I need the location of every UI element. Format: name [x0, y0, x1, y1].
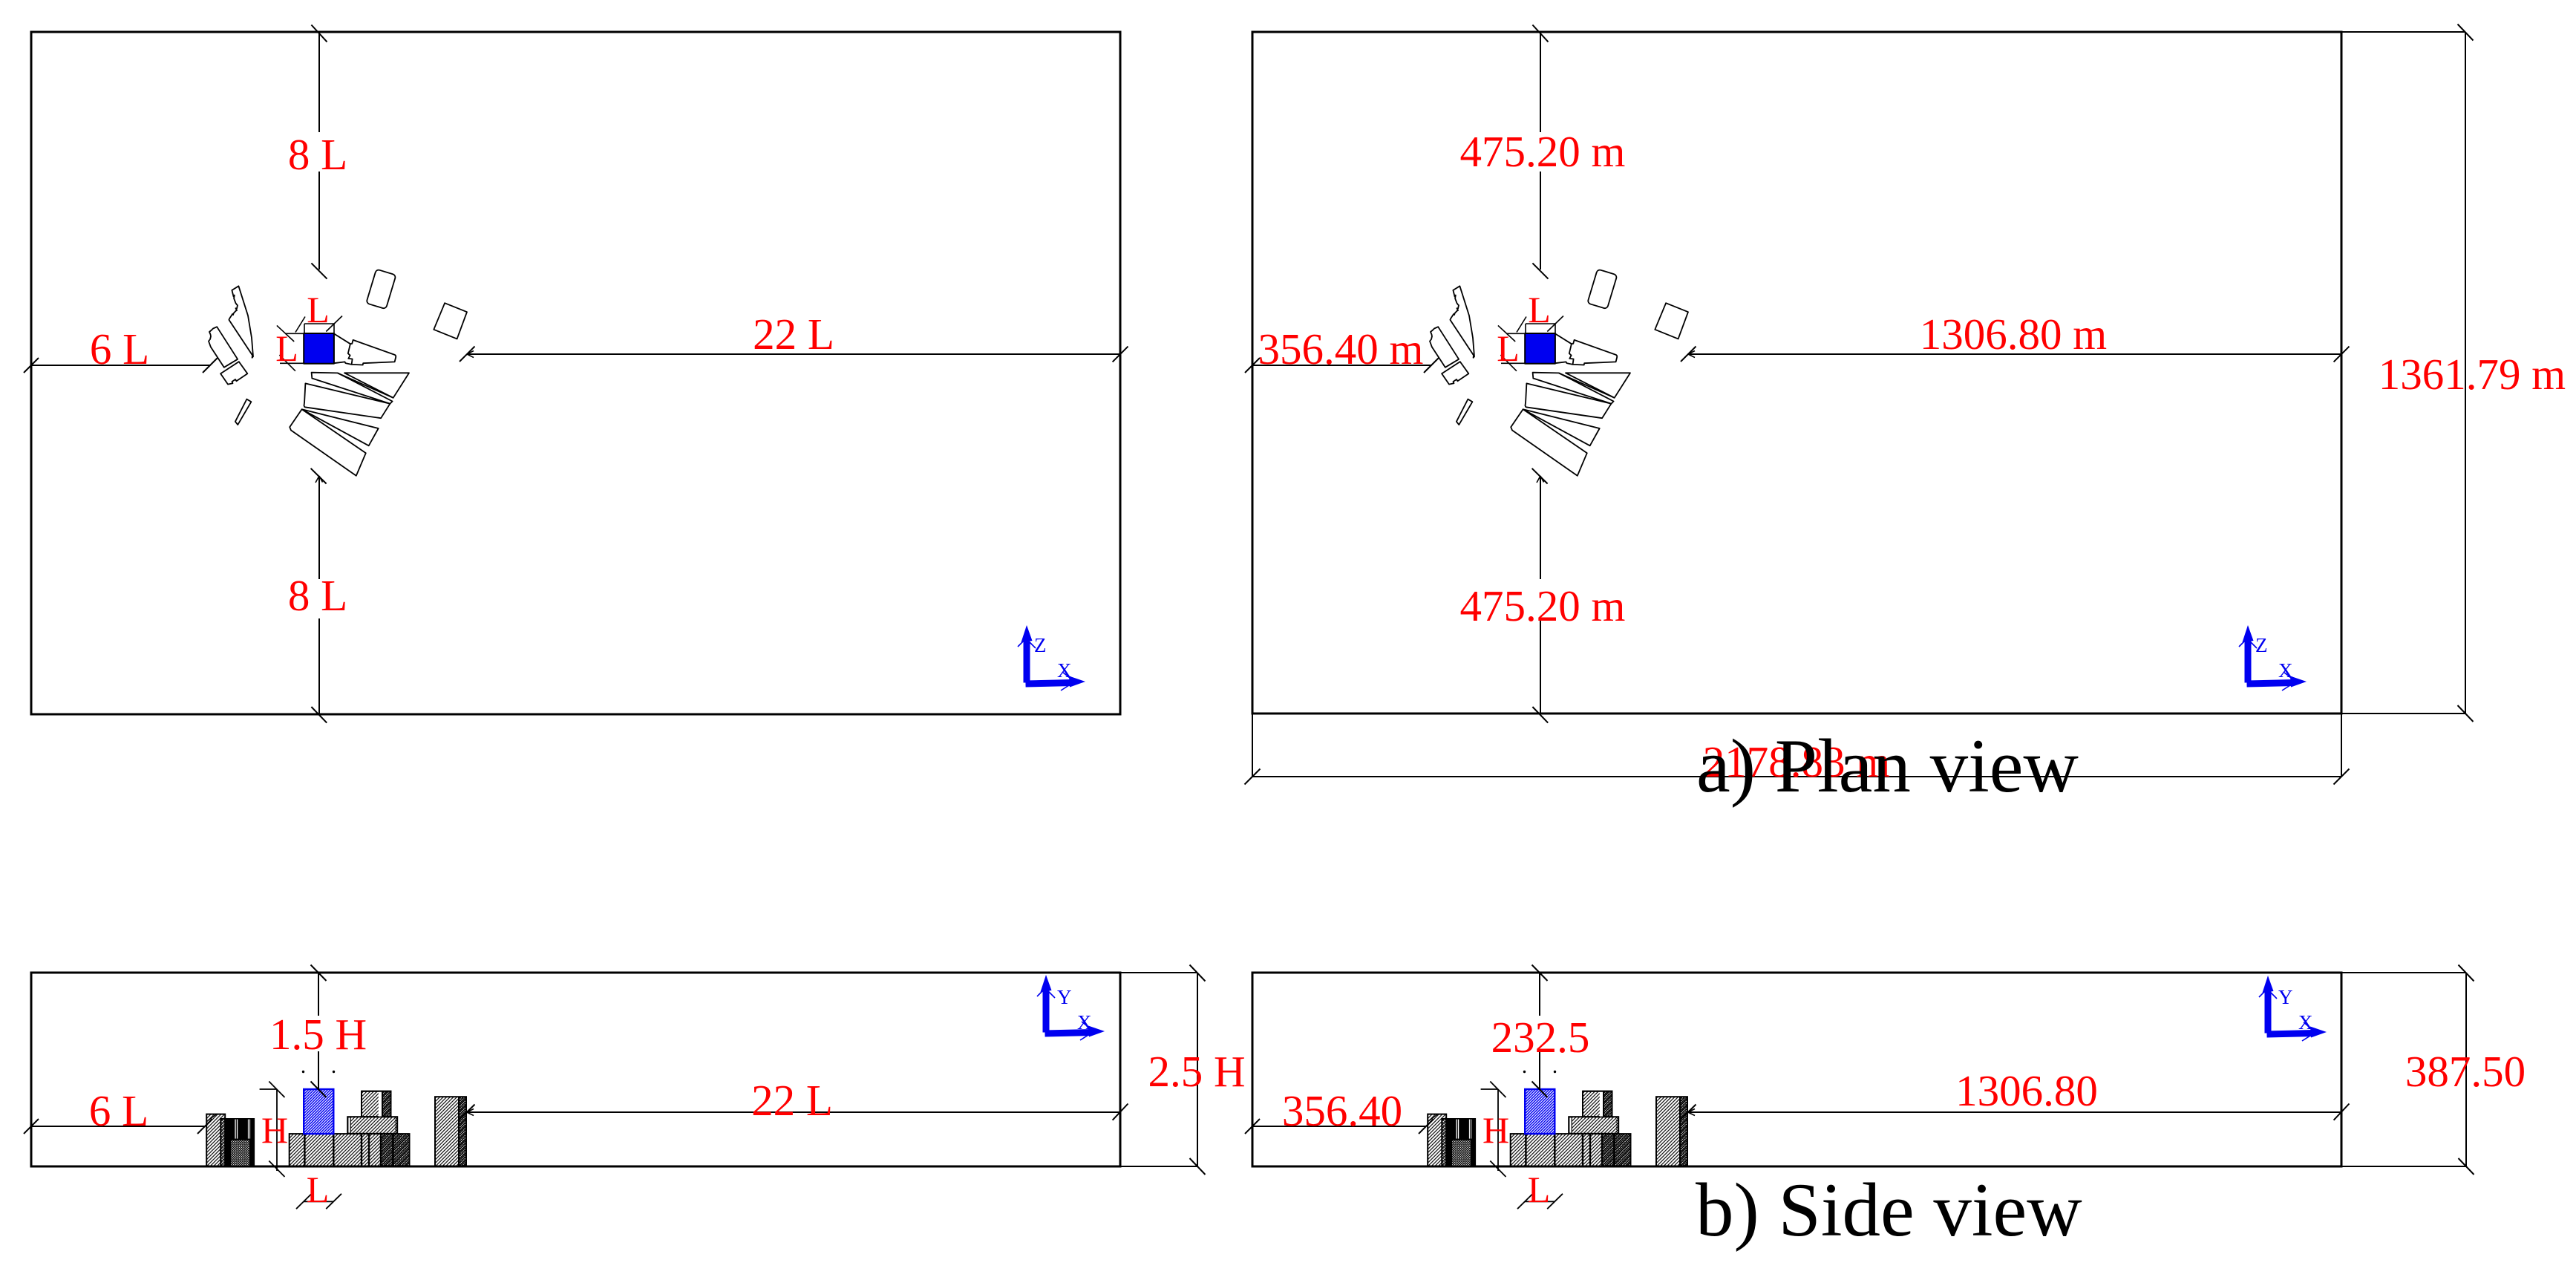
- svg-text:22 L: 22 L: [751, 1076, 833, 1125]
- svg-text:475.20 m: 475.20 m: [1460, 127, 1626, 176]
- svg-text:X: X: [1077, 1011, 1092, 1034]
- svg-text:L: L: [1528, 1169, 1551, 1210]
- svg-text:1361.79 m: 1361.79 m: [2379, 350, 2566, 399]
- svg-text:Z: Z: [1034, 634, 1047, 656]
- svg-text:6 L: 6 L: [90, 324, 149, 373]
- svg-text:356.40: 356.40: [1282, 1086, 1402, 1135]
- svg-text:Y: Y: [2278, 986, 2293, 1008]
- svg-text:387.50: 387.50: [2405, 1047, 2526, 1096]
- svg-text:X: X: [2278, 659, 2293, 682]
- svg-text:1306.80 m: 1306.80 m: [1920, 310, 2107, 359]
- svg-text:2.5 H: 2.5 H: [1148, 1047, 1245, 1096]
- svg-text:22 L: 22 L: [753, 310, 834, 359]
- svg-text:Y: Y: [1057, 986, 1072, 1008]
- svg-text:232.5: 232.5: [1491, 1013, 1590, 1062]
- svg-text:8 L: 8 L: [288, 571, 347, 620]
- svg-text:b) Side view: b) Side view: [1696, 1168, 2082, 1253]
- svg-text:a) Plan view: a) Plan view: [1696, 724, 2079, 809]
- svg-text:6 L: 6 L: [89, 1086, 148, 1135]
- svg-text:X: X: [1057, 659, 1072, 682]
- svg-text:H: H: [1482, 1109, 1509, 1151]
- svg-text:L: L: [307, 1169, 330, 1210]
- svg-text:1.5 H: 1.5 H: [269, 1010, 367, 1059]
- svg-text:H: H: [261, 1109, 288, 1151]
- svg-text:8 L: 8 L: [288, 130, 347, 179]
- svg-text:356.40 m: 356.40 m: [1258, 324, 1424, 373]
- svg-text:1306.80: 1306.80: [1955, 1066, 2098, 1115]
- svg-text:475.20 m: 475.20 m: [1460, 581, 1626, 630]
- svg-text:Z: Z: [2255, 634, 2268, 656]
- svg-text:X: X: [2298, 1011, 2313, 1034]
